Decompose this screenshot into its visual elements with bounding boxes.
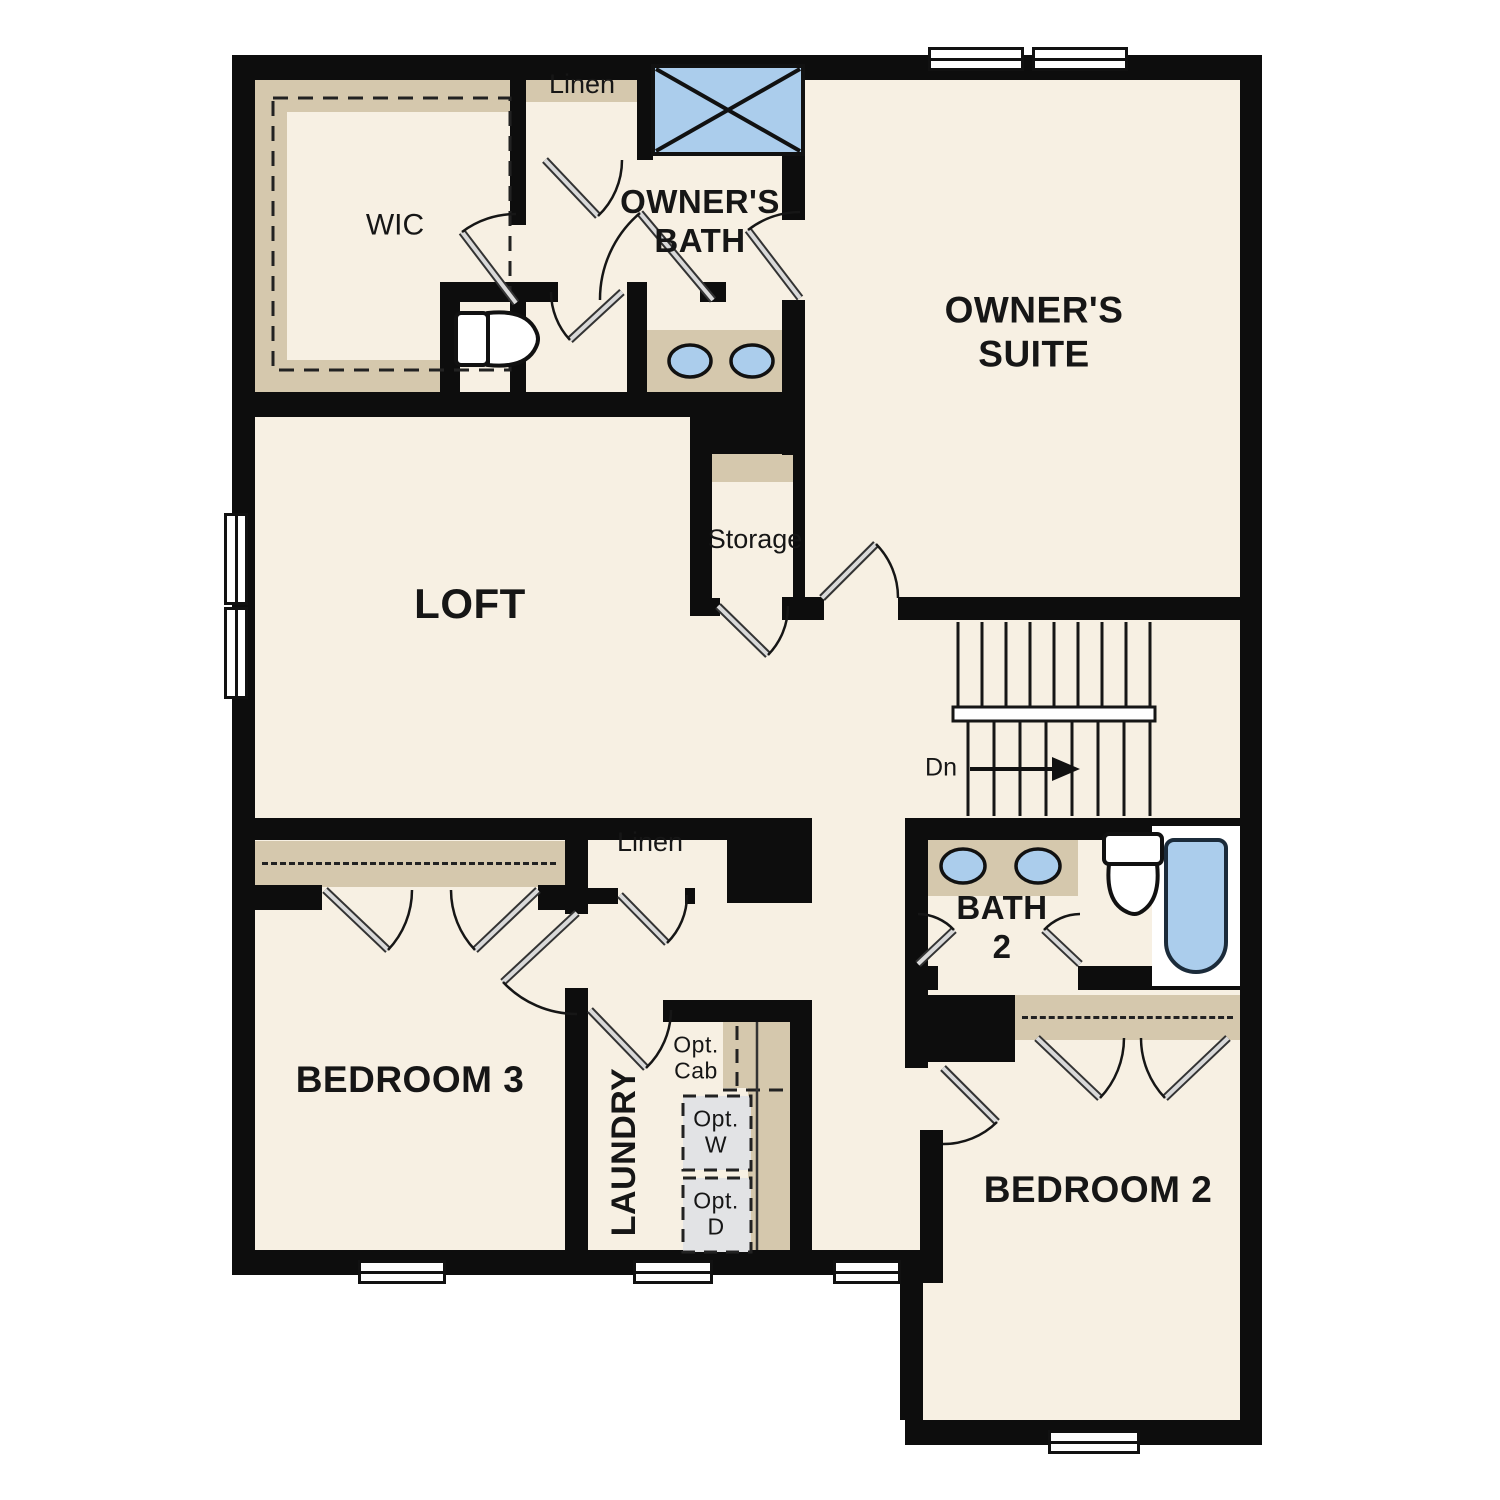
room-label-bedroom2: BEDROOM 2 [984,1168,1213,1212]
door-swing [1044,914,1080,964]
room-label-owners-bath: OWNER'S BATH [620,183,780,261]
door-swing [462,214,516,303]
stairs-dn-label: Dn [925,753,957,783]
sink-icon [941,849,1060,883]
stairs-down-arrow [970,757,1080,781]
room-label-storage: Storage [708,524,803,556]
room-label-linen-upper: Linen [549,69,615,101]
room-label-bedroom3: BEDROOM 3 [296,1058,525,1102]
door-swing [590,1010,671,1068]
sink-icon [669,345,773,377]
door-swing [620,895,687,943]
door-swing [551,292,622,340]
door-swing [718,606,788,655]
door-swing [545,160,622,216]
floor-plan: WIC Linen OWNER'S BATH OWNER'S SUITE Sto… [0,0,1500,1500]
room-label-owners-suite: OWNER'S SUITE [945,288,1124,375]
shower [653,66,803,154]
room-label-wic: WIC [366,207,424,242]
door-swing [503,913,577,1014]
closet-double-door [325,890,538,950]
room-label-bath2: BATH 2 [956,889,1047,967]
door-swing [918,914,954,964]
label-opt-w: Opt. W [693,1106,738,1158]
label-opt-cab: Opt. Cab [673,1032,718,1084]
room-label-linen-lower: Linen [617,827,683,859]
staircase [953,622,1155,816]
toilet-icon [456,312,538,365]
door-swing [943,1068,997,1144]
closet-double-door [1037,1038,1228,1098]
room-label-loft: LOFT [414,579,526,629]
door-swing [822,544,898,598]
room-label-laundry: LAUNDRY [604,1068,644,1236]
label-opt-d: Opt. D [693,1188,738,1240]
toilet-icon [1104,834,1162,914]
